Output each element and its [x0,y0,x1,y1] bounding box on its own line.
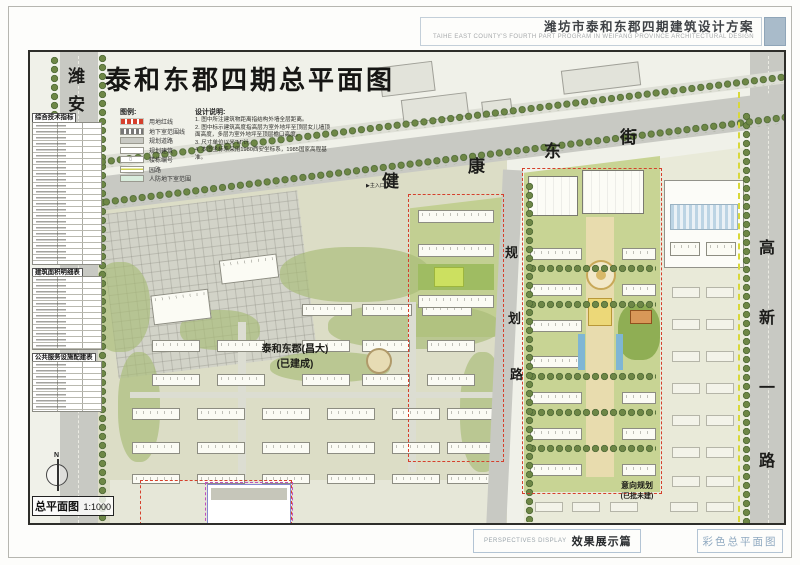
residential-building [132,408,180,420]
legend-item-label: 园路 [149,165,161,174]
road-swatch-icon [120,137,144,144]
design-note-line: 2. 图中标示建筑高度指高层为室外地坪至顶层女儿墙顶面高度，多层为室外地坪至顶层… [195,125,335,140]
road-name-char: 东 [544,137,561,162]
north-arrow-icon [46,464,68,486]
project-title-cn: 潍坊市泰和东郡四期建筑设计方案 [421,20,754,34]
yellow-utility-line [738,92,740,522]
outline-building [706,383,734,394]
built-site-name: 泰和东郡(昌大) [235,340,355,355]
residential-building [152,340,200,352]
site-red-line [408,194,504,462]
footer-section-en: PERSPECTIVES DISPLAY [484,538,567,544]
red-dash-swatch-icon [120,118,144,125]
outline-building [706,476,734,487]
parking-canopy [670,204,738,230]
road-name-char: 一 [759,374,775,398]
reserved-small-building [670,242,700,256]
header-color-square [764,17,786,46]
road-name-char: 康 [468,152,485,177]
road-name-char: 潍 [68,62,85,87]
road-name-char: 街 [620,123,637,148]
outline-building [672,415,700,426]
north-needle [57,459,59,491]
planned-site-status: (已批未建) [600,491,674,501]
scale-block: 总平面图 1:1000 [32,496,114,516]
legend-item-label: 人防地下室范围 [149,174,191,183]
design-notes-heading: 设计说明: [195,107,335,117]
outline-building [672,287,700,298]
design-note-line: 4. 本图坐标系采用1980西安坐标系，1985国家高程基准。 [195,147,335,162]
outline-building [672,383,700,394]
built-site-label: 泰和东郡(昌大) (已建成) [235,340,355,370]
scale-label: 总平面图 [35,501,79,513]
legend-item-label: 地下室范围线 [149,127,185,136]
planned-site-label: 意向规划 (已批未建) [600,480,674,501]
tree-row [742,112,751,524]
residential-building [262,442,310,454]
outline-building [706,319,734,330]
drawing-sheet: 潍坊市泰和东郡四期建筑设计方案 TAIHE EAST COUNTY'S FOUR… [0,0,800,565]
outline-building [610,502,638,512]
residential-building [327,408,375,420]
site-plan-drawing: 潍安路健康东街规划路高新一路 泰和东郡四期总平面图 图例: 用地红线地下室范围线… [28,50,786,525]
basement-swatch-icon [120,175,144,182]
outline-building [535,502,563,512]
facilities-table [32,361,102,412]
site-red-line [522,168,662,494]
outline-building [706,287,734,298]
residential-building [392,474,440,484]
number-swatch-icon [120,156,144,163]
residential-building [132,442,180,454]
footer-page-title: 彩色总平面图 [703,534,778,549]
legend-item-label: 规划道路 [149,136,173,145]
path-swatch-icon [120,166,144,173]
main-entrance-label: ▶主入口 [366,182,385,189]
residential-building [262,408,310,420]
residential-building [302,374,350,386]
road-name-char: 高 [759,234,775,258]
residential-building [197,408,245,420]
legend-item: 园路 [120,165,210,175]
footer-section-cn: 效果展示篇 [572,533,632,549]
design-note-line: 1. 图中所注建筑物距离指结构外墙全层距离。 [195,117,335,125]
areas-table [32,276,102,350]
legend-item-label: 楼栋编号 [149,155,173,164]
outline-building [672,447,700,458]
outline-building [706,502,734,512]
residential-building [197,442,245,454]
residential-building [362,374,410,386]
north-letter: N [54,452,59,459]
legend-item-label: 规划建筑 [149,146,173,155]
indicators-table [32,122,102,265]
grey-dash-swatch-icon [120,128,144,135]
residential-building [152,374,200,386]
residential-building [217,374,265,386]
road-name-char: 划 [508,308,521,327]
residential-building [362,304,412,316]
planned-site-name: 意向规划 [600,480,674,491]
outline-building [672,351,700,362]
outline-building [572,502,600,512]
header-title-block: 潍坊市泰和东郡四期建筑设计方案 TAIHE EAST COUNTY'S FOUR… [420,17,762,46]
outline-building [672,319,700,330]
built-site-status: (已建成) [235,355,355,370]
road-name-char: 新 [759,304,775,328]
reserved-small-building [706,242,736,256]
scale-value: 1:1000 [83,502,111,512]
drawing-title: 泰和东郡四期总平面图 [105,60,395,97]
road-name-char: 规 [505,242,518,261]
road-name-char: 路 [510,364,523,383]
outline-building [706,351,734,362]
legend-item-label: 用地红线 [149,117,173,126]
main-entrance-text: 主入口 [370,183,385,189]
building-swatch-icon [120,147,144,154]
round-plaza [366,348,392,374]
design-notes: 设计说明: 1. 图中所注建筑物距离指结构外墙全层距离。2. 图中标示建筑高度指… [195,107,335,163]
outline-building [672,476,700,487]
road-name-char: 安 [68,90,85,115]
footer-page-title-box: 彩色总平面图 [697,529,783,553]
road-name-char: 路 [759,447,775,471]
outline-building [670,502,698,512]
residential-building [327,474,375,484]
site-red-line [140,480,292,525]
project-title-en: TAIHE EAST COUNTY'S FOURTH PART PROGRAM … [421,34,754,40]
outline-building [706,447,734,458]
footer-section-block: PERSPECTIVES DISPLAY 效果展示篇 [473,529,641,553]
residential-building [302,304,352,316]
legend-item: 人防地下室范围 [120,174,210,184]
residential-building [327,442,375,454]
outline-building [706,415,734,426]
